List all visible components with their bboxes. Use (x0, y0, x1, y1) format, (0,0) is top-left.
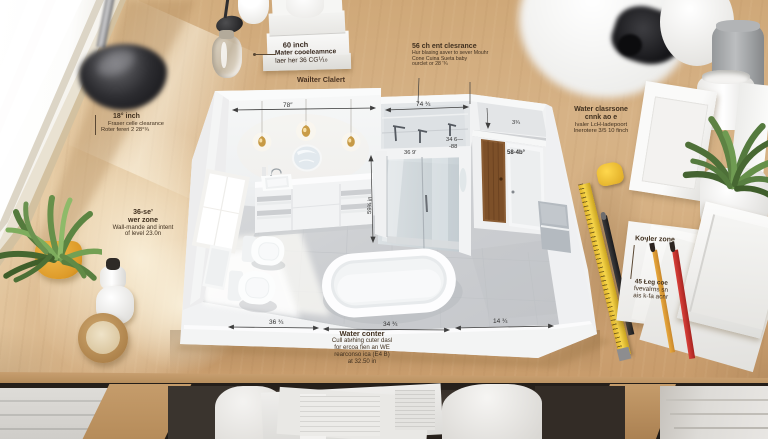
svg-text:36 9′: 36 9′ (404, 150, 416, 156)
svg-text:34 ¾: 34 ¾ (383, 321, 398, 328)
svg-text:78″: 78″ (283, 102, 293, 109)
svg-text:36 ¾: 36 ¾ (269, 319, 284, 326)
svg-text:59¾ in: 59¾ in (367, 196, 374, 214)
svg-text:58-4b°: 58-4b° (507, 150, 526, 156)
svg-text:-88: -88 (449, 144, 457, 150)
svg-text:74 ¾: 74 ¾ (416, 101, 431, 108)
svg-text:14 ¾: 14 ¾ (493, 318, 508, 325)
svg-text:3¾: 3¾ (512, 120, 520, 126)
svg-text:34 6—: 34 6— (446, 137, 463, 143)
